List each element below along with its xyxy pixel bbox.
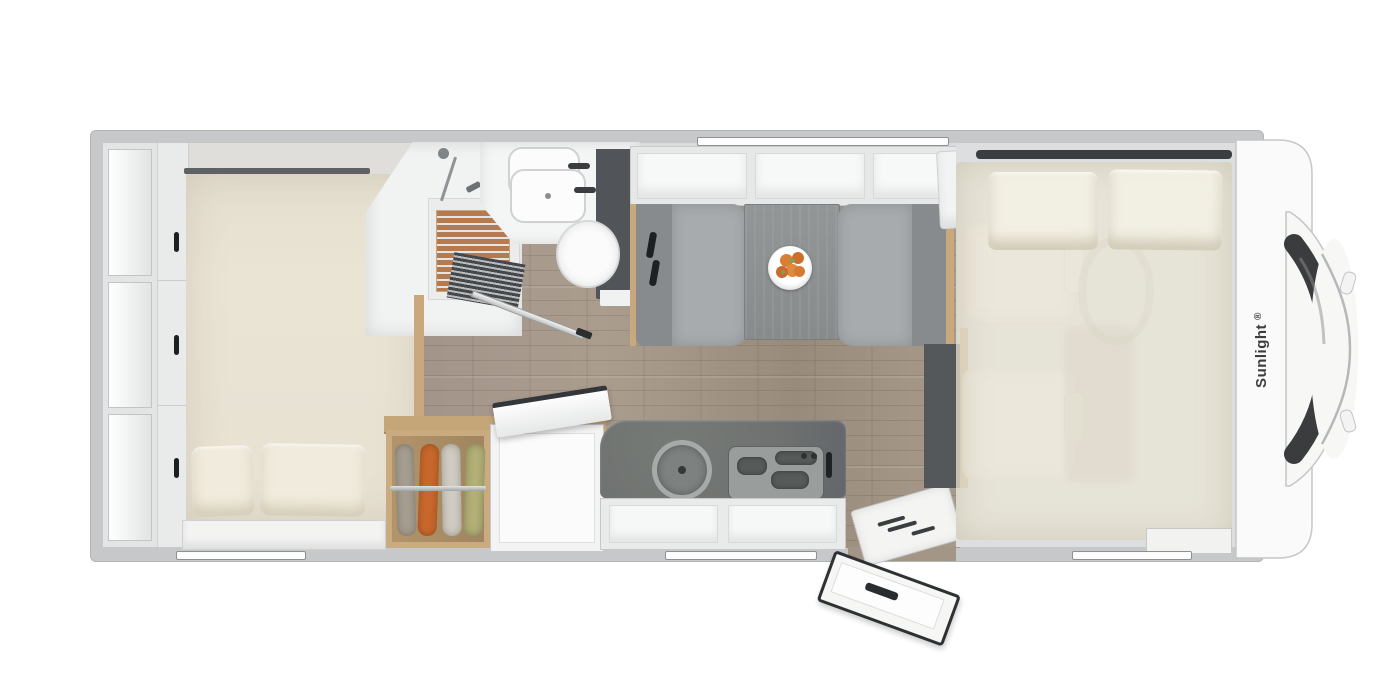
kitchen-drawer <box>609 505 718 543</box>
brand-logo: Sunlight® <box>1253 260 1275 440</box>
rear-shelf-column <box>103 143 157 547</box>
hob-lid-handle <box>826 452 832 478</box>
dinette-bench-right <box>838 204 912 346</box>
fruit-plate <box>768 246 812 290</box>
drop-down-bed-pillow <box>1108 169 1223 250</box>
fruit <box>794 266 805 277</box>
cabinet-handle <box>174 335 179 355</box>
washbasin <box>510 169 586 223</box>
kitchen-end-cabinet <box>490 424 604 552</box>
bed-foot-ledge <box>182 520 386 550</box>
entry-door-open <box>817 550 961 647</box>
fruit-leaf <box>790 258 795 263</box>
cabinet-divider <box>158 280 188 281</box>
rear-shelf-compartment <box>108 414 152 541</box>
rear-shelf-compartment <box>108 282 152 409</box>
toilet <box>556 220 620 288</box>
burner <box>771 471 809 489</box>
drop-down-bed-pillow <box>988 172 1098 250</box>
window-top <box>697 137 949 146</box>
gas-hob <box>728 446 824 500</box>
brand-label: Sunlight <box>1253 324 1270 388</box>
sink-drain <box>678 466 686 474</box>
cabinet-panel <box>499 433 595 543</box>
wardrobe-rail <box>390 486 486 491</box>
hanging-wardrobe <box>386 430 490 548</box>
hob-knob <box>801 453 807 459</box>
vehicle-front-nose <box>1228 126 1368 572</box>
cabinet-divider <box>158 405 188 406</box>
basin-drain <box>545 193 551 199</box>
kitchen-sink <box>652 440 712 500</box>
dinette-bench-left <box>672 204 746 346</box>
hob-knob <box>811 453 817 459</box>
basin-faucet <box>574 187 596 193</box>
kitchen-drawer <box>728 505 837 543</box>
rear-shelf-compartment <box>108 149 152 276</box>
step-grille <box>911 526 935 536</box>
window-kitchen <box>665 551 817 560</box>
bedroom-divider-trim <box>414 295 424 431</box>
wardrobe-door-column <box>157 143 189 547</box>
kitchen-lower-cabinets <box>600 498 846 550</box>
window-cab <box>1072 551 1192 560</box>
registered-mark: ® <box>1253 312 1264 320</box>
burner <box>737 457 767 475</box>
window-rear-left <box>176 551 306 560</box>
cabinet-handle <box>174 458 179 478</box>
shower-head <box>438 148 449 159</box>
overhead-locker <box>637 153 747 199</box>
windscreen-top-edge <box>976 150 1232 159</box>
fruit-leaf <box>781 270 785 274</box>
overhead-locker <box>755 153 865 199</box>
cabinet-handle <box>174 232 179 252</box>
bed-pillow <box>259 443 366 517</box>
motorhome-floorplan: Sunlight® <box>0 0 1400 700</box>
bed-pillow <box>191 445 255 517</box>
